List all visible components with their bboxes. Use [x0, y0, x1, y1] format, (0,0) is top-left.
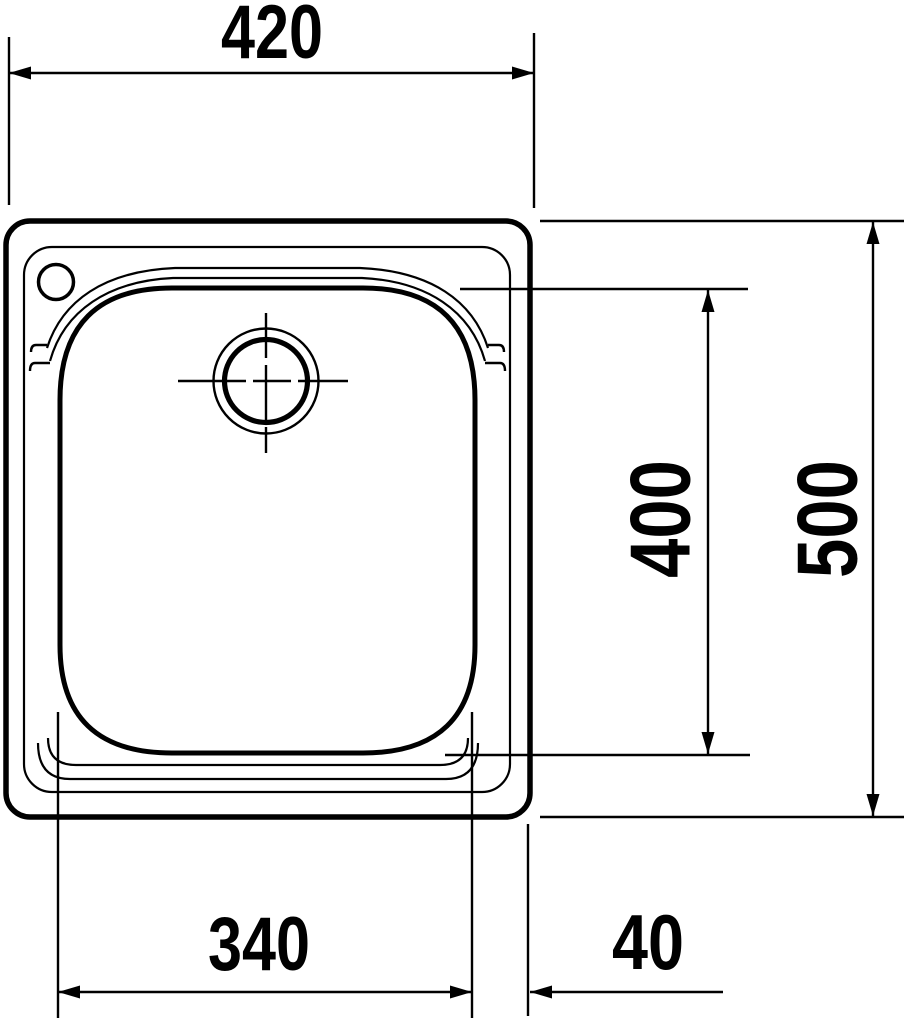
sink-dimension-drawing: 420 500 400 340 40 [0, 0, 911, 1024]
drawing-canvas: 420 500 400 340 40 [0, 0, 911, 1024]
dimension-overall-width: 420 [9, 0, 534, 208]
arrowhead-left [530, 986, 552, 999]
dimension-overall-depth: 500 [540, 221, 904, 817]
arrowhead-left [58, 986, 80, 999]
arrowhead-up [867, 222, 880, 244]
arrowhead-right [450, 986, 472, 999]
arrowhead-down [702, 732, 715, 754]
arrowhead-up [702, 290, 715, 312]
sink-top-view [6, 221, 530, 817]
sink-outer-edge [6, 221, 530, 817]
arrowhead-left [9, 67, 31, 80]
dimension-label-400: 400 [614, 460, 709, 578]
dimension-label-40: 40 [612, 898, 684, 986]
dimension-label-420: 420 [221, 0, 323, 75]
arrowhead-right [512, 67, 534, 80]
dimension-label-340: 340 [208, 902, 310, 987]
dimension-edge-offset: 40 [528, 824, 723, 1016]
dimension-label-500: 500 [781, 460, 876, 578]
arrowhead-down [867, 794, 880, 816]
